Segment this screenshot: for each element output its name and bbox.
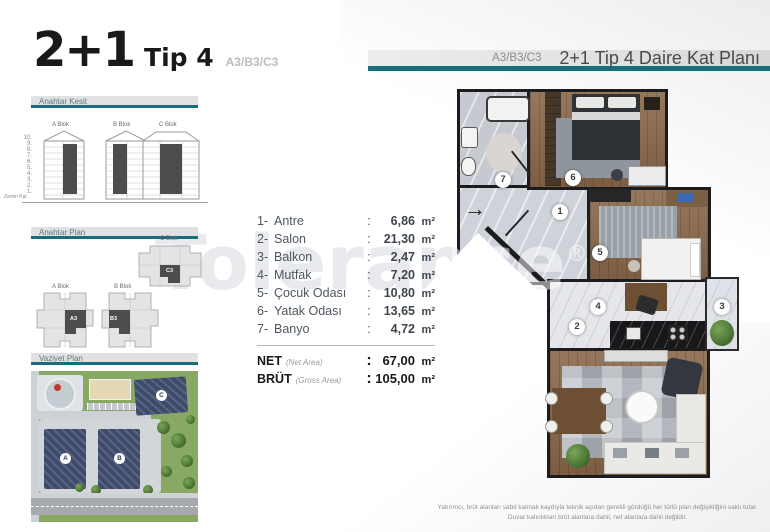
pillow: [576, 97, 604, 108]
colon: :: [365, 352, 373, 370]
keyplan-unit-c3: C3: [166, 268, 173, 274]
title-block-code: A3/B3/C3: [226, 55, 279, 69]
room-badge-yatak-odasi: 6: [565, 170, 581, 186]
tree: [181, 455, 193, 467]
site-path: [31, 411, 151, 419]
brut-area-row: BRÜT(Gross Area):105,00m²: [257, 370, 435, 388]
room-badge-mutfak: 4: [590, 299, 606, 315]
room-unit: m²: [415, 270, 435, 282]
header-block-code: A3/B3/C3: [492, 52, 541, 64]
keyplan-unit-b3: B3: [110, 316, 117, 322]
road-center-line: [31, 506, 198, 507]
room-row-mutfak: 4-Mutfak:7,20m²: [257, 268, 435, 286]
room-unit: m²: [415, 306, 435, 318]
cooktop: [668, 325, 688, 341]
dining-chair: [600, 420, 613, 433]
laptop: [678, 193, 693, 202]
room-area: 4,72: [373, 322, 415, 336]
list-divider: [257, 345, 435, 346]
colon: :: [365, 250, 373, 264]
sink: [461, 127, 478, 148]
room-name: Antre: [274, 214, 365, 228]
room-no: 5-: [257, 286, 274, 300]
room-no: 1-: [257, 214, 274, 228]
room-badge-salon: 2: [569, 319, 585, 335]
kitchen-sink: [626, 327, 641, 340]
ground-floor-label: Zemin Kat: [4, 194, 27, 200]
room-area: 7,20: [373, 268, 415, 282]
bath-rug: [486, 133, 522, 173]
room-area: 10,80: [373, 286, 415, 300]
dining-chair: [545, 420, 558, 433]
room-row-yatak-odasi: 6-Yatak Odası:13,65m²: [257, 304, 435, 322]
section-bar-anahtar-kesit: Anahtar Kesit: [31, 96, 198, 108]
title-variant: Tip 4: [144, 43, 214, 72]
section-label: Anahtar Kesit: [39, 97, 87, 106]
entry-arrow-icon: →: [464, 196, 486, 222]
wardrobe: [589, 189, 631, 202]
room-row-salon: 2-Salon:21,30m²: [257, 232, 435, 250]
room-name: Mutfak: [274, 268, 365, 282]
room-area: 21,30: [373, 232, 415, 246]
tree: [183, 477, 195, 489]
tree: [157, 421, 170, 434]
net-area-row: NET(Net Area):67,00m²: [257, 352, 435, 370]
room-no: 6-: [257, 304, 274, 318]
room-no: 7-: [257, 322, 274, 336]
site-building-c: C: [134, 376, 188, 416]
colon: :: [365, 286, 373, 300]
bathtub: [486, 96, 530, 122]
room-area: 2,47: [373, 250, 415, 264]
tv-unit: [604, 350, 668, 362]
site-building-b: B: [98, 429, 140, 489]
road: [31, 498, 198, 515]
room-badge-banyo: 7: [495, 172, 511, 188]
keyplan-unit-a3: A3: [70, 316, 77, 322]
section-label: Vaziyet Plan: [39, 354, 83, 363]
room-name: Banyo: [274, 322, 365, 336]
site-plan: C A B: [31, 371, 198, 522]
bed-fold: [572, 112, 640, 120]
sofa-chaise: [676, 394, 706, 446]
room-badge-antre: 1: [552, 204, 568, 220]
double-bed: [572, 94, 640, 160]
room-row-antre: 1-Antre:6,86m²: [257, 214, 435, 232]
site-building-a: A: [44, 429, 86, 489]
cushion: [645, 448, 659, 458]
keyplan-a-blok: [36, 292, 94, 348]
balcony-plant: [710, 320, 734, 346]
plan-header-bar: A3/B3/C3 2+1 Tip 4 Daire Kat Planı: [368, 50, 770, 71]
tree: [186, 415, 195, 424]
colon: :: [365, 322, 373, 336]
plan-label-a-blok: A Blok: [52, 284, 69, 290]
disclaimer: Yatırımcı, brüt alanları sabit kalmak ka…: [430, 503, 765, 524]
cushion: [613, 448, 627, 458]
coffee-table: [625, 390, 659, 424]
room-area: 6,86: [373, 214, 415, 228]
room-badge-cocuk-odasi: 5: [592, 245, 608, 261]
room-name: Yatak Odası: [274, 304, 365, 318]
room-badge-balkon: 3: [714, 299, 730, 315]
net-label: NET: [257, 354, 282, 368]
site-building-b-label: B: [114, 453, 125, 464]
nightstand: [644, 97, 660, 110]
pool-slide: [54, 384, 61, 391]
plan-label-b-blok: B Blok: [114, 284, 131, 290]
site-building-a-label: A: [60, 453, 71, 464]
room-name: Balkon: [274, 250, 365, 264]
pillow: [608, 97, 636, 108]
dining-table: [552, 388, 606, 434]
header-plan-title: 2+1 Tip 4 Daire Kat Planı: [559, 48, 760, 69]
room-unit: m²: [415, 288, 435, 300]
floor-number-column: 10. 9. 8. 7. 6. 5. 4. 3. 2. 1.: [22, 135, 32, 195]
page-title: 2+1 Tip 4 A3/B3/C3: [33, 22, 278, 78]
dining-chair: [600, 392, 613, 405]
site-building-c-label: C: [156, 390, 168, 402]
room-no: 2-: [257, 232, 274, 246]
section-label: Anahtar Plan: [39, 228, 85, 237]
room-unit: m²: [415, 216, 435, 228]
section-bar-vaziyet-plan: Vaziyet Plan: [31, 353, 198, 365]
room-row-cocuk-odasi: 5-Çocuk Odası:10,80m²: [257, 286, 435, 304]
room-row-banyo: 7-Banyo:4,72m²: [257, 322, 435, 340]
disclaimer-line-2: Duvar kalınlıkları brüt alanlara dahil, …: [430, 513, 765, 523]
sports-court: [89, 379, 131, 400]
net-sublabel: (Net Area): [286, 358, 365, 367]
stool: [628, 260, 640, 272]
room-area: 13,65: [373, 304, 415, 318]
stool: [611, 169, 623, 181]
brut-value: 105,00: [373, 371, 415, 386]
room-row-balkon: 3-Balkon:2,47m²: [257, 250, 435, 268]
dining-chair: [545, 392, 558, 405]
floorplan-sheet: { "ui": {"colon": ":"}, "title": {"main"…: [0, 0, 770, 532]
room-unit: m²: [415, 324, 435, 336]
pillow: [690, 243, 700, 277]
toilet: [461, 157, 476, 176]
pool: [44, 378, 76, 410]
sofa: [604, 442, 706, 474]
title-type: 2+1: [33, 22, 134, 78]
plan-label-c-blok: C Blok: [160, 236, 178, 242]
tree: [161, 466, 172, 477]
room-name: Çocuk Odası: [274, 286, 365, 300]
dresser: [628, 166, 666, 186]
colon: :: [365, 232, 373, 246]
brut-sublabel: (Gross Area): [296, 376, 365, 385]
room-no: 3-: [257, 250, 274, 264]
disclaimer-line-1: Yatırımcı, brüt alanları sabit kalmak ka…: [430, 503, 765, 513]
brut-label: BRÜT: [257, 372, 292, 386]
room-area-list: 1-Antre:6,86m² 2-Salon:21,30m² 3-Balkon:…: [257, 214, 435, 388]
room-no: 4-: [257, 268, 274, 282]
single-bed: [641, 238, 701, 280]
ground-line: [22, 202, 208, 203]
brut-unit: m²: [415, 374, 435, 386]
room-unit: m²: [415, 252, 435, 264]
keyplan-c-blok: [138, 244, 202, 288]
colon: :: [365, 370, 373, 388]
tree: [75, 483, 84, 492]
room-unit: m²: [415, 234, 435, 246]
section-diagram-a-blok: [41, 128, 87, 202]
section-diagram-c-blok: [140, 128, 202, 202]
net-unit: m²: [415, 356, 435, 368]
net-value: 67,00: [373, 353, 415, 368]
cushion: [675, 448, 689, 458]
colon: :: [365, 214, 373, 228]
kitchen-counter: [610, 321, 705, 348]
colon: :: [365, 304, 373, 318]
room-name: Salon: [274, 232, 365, 246]
colon: :: [365, 268, 373, 282]
tree: [171, 433, 186, 448]
salon-plant: [566, 444, 590, 468]
